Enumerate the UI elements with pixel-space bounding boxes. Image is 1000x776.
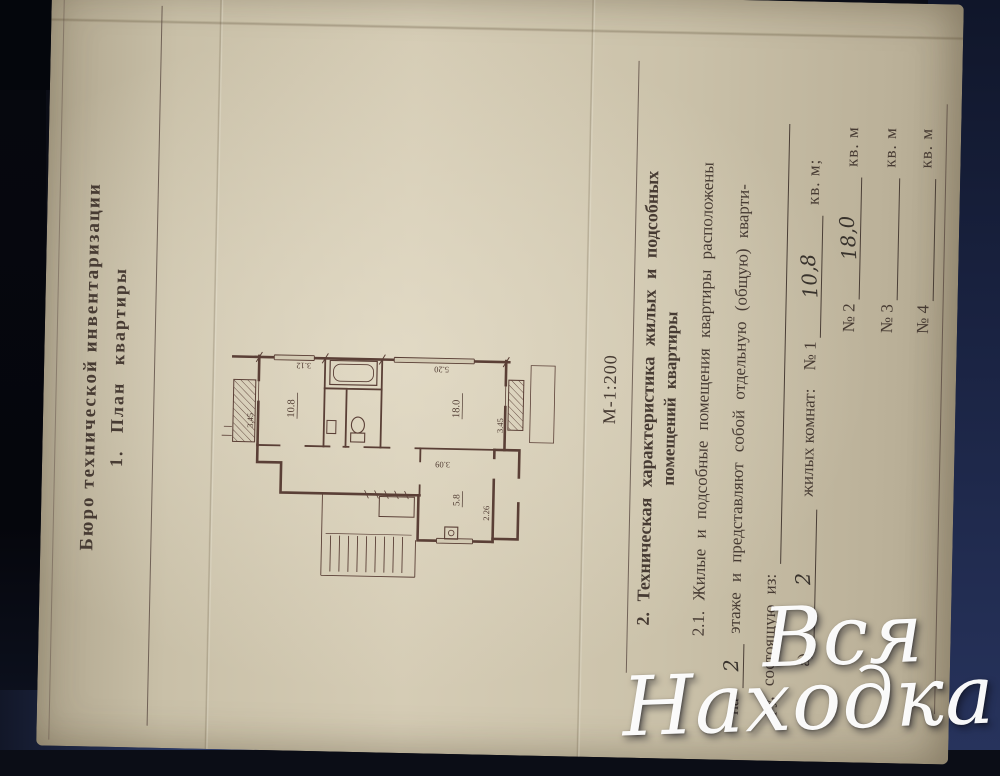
- balcony-room2: [508, 365, 556, 443]
- toilet-icon: [351, 417, 366, 442]
- room-row-num: № 3: [877, 304, 898, 333]
- dim-room1-width: 3.45: [245, 413, 255, 428]
- bathtub-icon: [330, 360, 377, 385]
- dim-kitchen-width: 2.26: [481, 506, 491, 521]
- room-row-unit: кв. м: [916, 128, 937, 169]
- window-room2: [394, 357, 474, 365]
- watermark-line2: Находка: [621, 664, 996, 741]
- fold-crease-right: [51, 18, 963, 41]
- room-row-unit: кв. м: [880, 127, 901, 168]
- area-kitchen: 5.8: [452, 494, 462, 506]
- rooms-count-handwritten: 2: [795, 572, 810, 586]
- top-border-rule: [48, 0, 65, 740]
- floor-plan-drawing: 3.45 3.12 10.8 5.20 18.0 3.45 5.8 3.09 2…: [214, 321, 565, 598]
- dimension-extension-ticks: [222, 426, 232, 435]
- consists-of-blank: [760, 123, 790, 563]
- window-room1: [274, 354, 314, 361]
- room-row-num: № 1: [800, 341, 821, 370]
- room-row-num: № 4: [913, 305, 934, 334]
- balcony-room1: [233, 379, 256, 441]
- dim-room1-height: 3.12: [296, 361, 311, 371]
- stairwell: [321, 489, 417, 577]
- fold-crease-middle: [576, 0, 596, 757]
- area-room1: 10.8: [286, 399, 297, 418]
- room-row-unit: кв. м;: [804, 158, 825, 205]
- room-area-slot: 10,8: [800, 215, 824, 337]
- stove-icon: [445, 527, 458, 539]
- sink-icon: [327, 420, 336, 433]
- room2-area-handwritten: 18,0: [839, 215, 856, 260]
- floor-line-rest: этаже и представляют собой отдельную (об…: [725, 184, 753, 634]
- dim-room2-width: 3.45: [495, 418, 505, 433]
- header-rule: [147, 6, 163, 726]
- room-row-unit: кв. м: [842, 126, 863, 167]
- room-row-num: № 2: [839, 303, 860, 332]
- room-area-slot: 18,0: [839, 177, 863, 299]
- watermark: Вся Находка: [619, 600, 996, 741]
- room-area-slot: [913, 178, 937, 300]
- room-area-slot: [877, 178, 901, 300]
- interior-walls: [256, 357, 506, 497]
- area-room2: 18.0: [451, 400, 462, 419]
- rooms-label: жилых комнат:: [798, 388, 820, 497]
- room1-area-handwritten: 10,8: [801, 253, 818, 298]
- dim-room2-height: 5.20: [434, 365, 449, 375]
- dim-kitchen-height: 3.09: [435, 460, 450, 470]
